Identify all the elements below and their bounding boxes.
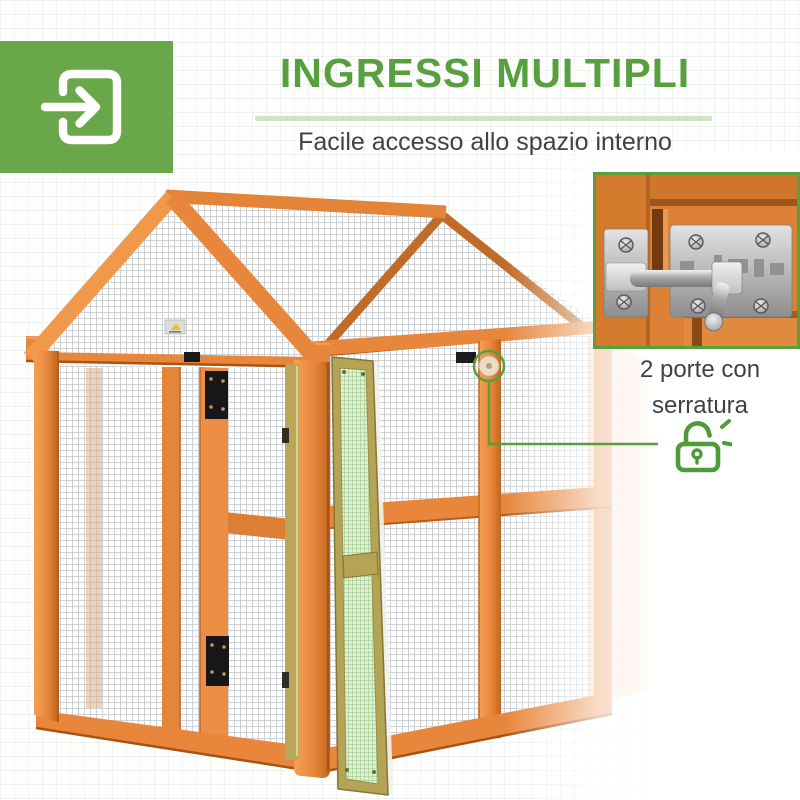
brand-sticker (165, 320, 185, 334)
door-hinge (456, 352, 476, 363)
door-hinge (205, 371, 228, 419)
page-subtitle: Facile accesso allo spazio interno (250, 128, 720, 157)
page-background: INGRESSI MULTIPLI Facile accesso allo sp… (0, 0, 800, 800)
door-knob (479, 356, 499, 376)
open-doors (282, 357, 391, 795)
enter-badge (0, 41, 173, 173)
enter-arrow-icon (39, 59, 135, 155)
callout-line1: 2 porte con (596, 352, 800, 388)
title-divider (255, 116, 712, 121)
door-latch-black (184, 352, 200, 362)
door-hinge (206, 636, 229, 686)
latch-close-up (596, 175, 797, 346)
padlock-icon (664, 412, 732, 474)
detail-inset (593, 172, 800, 349)
page-title: INGRESSI MULTIPLI (250, 50, 720, 97)
front-wall (34, 320, 318, 772)
corner-post (294, 360, 330, 778)
